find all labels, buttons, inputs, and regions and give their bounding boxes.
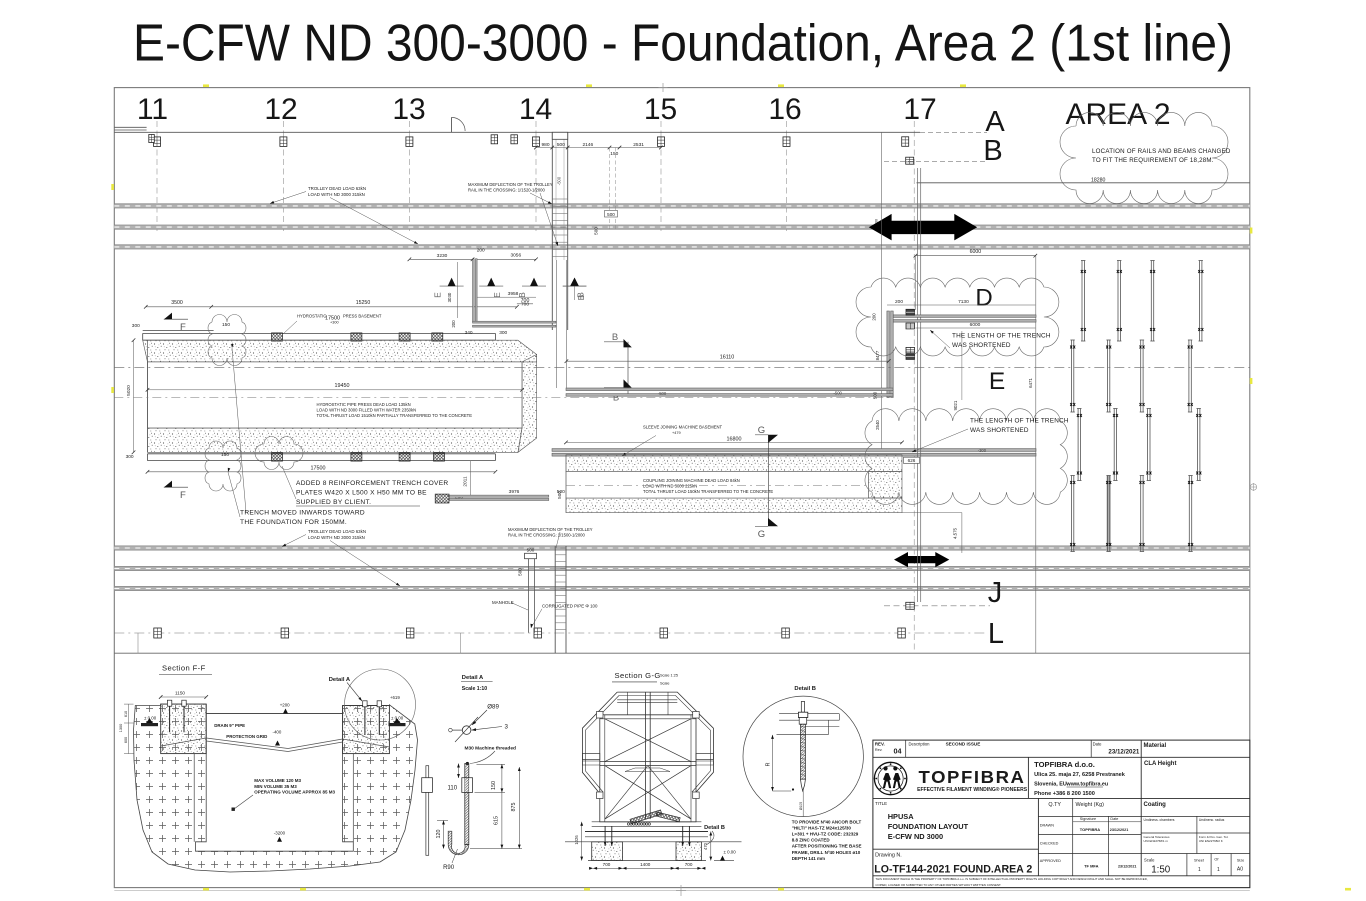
svg-text:M30 Machine threaded: M30 Machine threaded	[465, 746, 517, 752]
svg-text:EFFECTIVE FILAMENT WINDING® PI: EFFECTIVE FILAMENT WINDING® PIONEERS	[917, 786, 1027, 793]
svg-text:"HILTI" HAS-TZ M24x125/30: "HILTI" HAS-TZ M24x125/30	[792, 826, 852, 831]
svg-text:1: 1	[1198, 867, 1201, 873]
svg-text:Detail B: Detail B	[794, 686, 816, 692]
svg-text:J: J	[988, 577, 1003, 609]
svg-text:8.8 ZINC COATED: 8.8 ZINC COATED	[792, 838, 831, 843]
svg-text:23/12/2021: 23/12/2021	[1110, 828, 1128, 832]
svg-text:+200: +200	[280, 702, 290, 707]
svg-text:200: 200	[451, 320, 456, 328]
svg-text:300: 300	[499, 330, 507, 336]
svg-text:LOAD WITH ND 3000 315kN: LOAD WITH ND 3000 315kN	[308, 535, 365, 540]
svg-text:Date: Date	[1110, 817, 1118, 821]
svg-text:DEPTH 141 mm: DEPTH 141 mm	[792, 856, 825, 861]
svg-text:Ulica 25. maja 27, 6258 Prestr: Ulica 25. maja 27, 6258 Prestranek	[1034, 772, 1126, 778]
svg-text:980: 980	[541, 142, 549, 148]
svg-text:11: 11	[137, 93, 168, 126]
svg-text:HYDROSTATIC PIPE PRESS DEAD LO: HYDROSTATIC PIPE PRESS DEAD LOAD 135kN	[317, 402, 411, 407]
svg-text:875: 875	[511, 803, 517, 812]
svg-text:3: 3	[505, 724, 509, 731]
svg-text:MAX VOLUME 120 M3: MAX VOLUME 120 M3	[254, 778, 301, 783]
svg-text:150: 150	[221, 452, 229, 458]
svg-text:www.topfibra.eu: www.topfibra.eu	[1066, 782, 1109, 788]
svg-text:LOAD WITH ND 3000 FILLED WITH: LOAD WITH ND 3000 FILLED WITH WATER 2350…	[317, 408, 417, 413]
svg-text:B: B	[517, 292, 527, 298]
svg-text:16: 16	[768, 93, 801, 126]
svg-text:-500: -500	[557, 176, 562, 185]
svg-text:615: 615	[494, 816, 500, 825]
svg-text:2540: 2540	[875, 420, 880, 430]
svg-text:TOPFIBRA: TOPFIBRA	[919, 767, 1026, 787]
svg-text:PROTECTION GRID: PROTECTION GRID	[226, 734, 267, 739]
svg-text:1:50: 1:50	[1151, 865, 1171, 876]
svg-text:R: R	[766, 762, 772, 766]
svg-text:13: 13	[392, 93, 425, 126]
svg-text:15250: 15250	[356, 300, 371, 306]
svg-text:Section F-F: Section F-F	[162, 664, 206, 673]
svg-text:TROLLEY DEAD LOAD 63kN: TROLLEY DEAD LOAD 63kN	[308, 186, 366, 191]
svg-text:Undiness. chambers: Undiness. chambers	[1144, 818, 1175, 822]
svg-text:AREA 2: AREA 2	[1065, 98, 1170, 131]
svg-text:2531: 2531	[633, 142, 644, 148]
svg-text:Rev.: Rev.	[875, 748, 883, 752]
svg-text:TOPFIBRA: TOPFIBRA	[1080, 827, 1100, 832]
svg-text:6000: 6000	[970, 249, 982, 255]
svg-text:1400: 1400	[640, 862, 651, 867]
svg-text:REV.: REV.	[875, 741, 885, 746]
svg-text:LO-TF144-2021 FOUND.AREA 2: LO-TF144-2021 FOUND.AREA 2	[874, 863, 1032, 875]
svg-text:G: G	[758, 425, 765, 436]
svg-text:CORRUGATED PIPE Φ 100: CORRUGATED PIPE Φ 100	[542, 604, 598, 609]
svg-text:HYDROSTATIC: HYDROSTATIC	[297, 314, 326, 319]
svg-text:1: 1	[1217, 867, 1220, 873]
svg-text:Size: Size	[1237, 859, 1244, 863]
svg-text:COUPLING JOINING MACHINE DEAD: COUPLING JOINING MACHINE DEAD LOAD 84kN	[643, 478, 740, 483]
svg-text:17: 17	[903, 93, 936, 126]
svg-text:Detail A: Detail A	[462, 675, 484, 681]
svg-text:A0: A0	[1237, 866, 1243, 872]
svg-text:200: 200	[895, 299, 903, 305]
svg-text:6471: 6471	[1028, 378, 1033, 388]
svg-text:TOTAL THRUST LOAD 150kN TRANS: TOTAL THRUST LOAD 150kN TRANSFERRED TO T…	[643, 489, 773, 494]
svg-text:-400: -400	[273, 730, 282, 735]
svg-text:Drawing N.: Drawing N.	[875, 852, 902, 858]
svg-text:Coating: Coating	[1144, 802, 1167, 808]
svg-text:RAIL IN THE CROSSING: 1/1520-1: RAIL IN THE CROSSING: 1/1520-1/2000	[468, 188, 545, 193]
svg-text:2146: 2146	[582, 142, 593, 148]
svg-text:150: 150	[610, 151, 618, 157]
svg-text:6000: 6000	[970, 322, 981, 328]
svg-text:9021: 9021	[953, 400, 958, 410]
svg-text:Scale: Scale	[1144, 858, 1155, 863]
svg-text:Scale 1:10: Scale 1:10	[462, 686, 487, 692]
svg-text:Ø105: Ø105	[799, 802, 803, 810]
svg-text:3958: 3958	[508, 291, 519, 297]
svg-text:19450: 19450	[335, 383, 350, 389]
svg-text:TF MFA: TF MFA	[1084, 864, 1099, 869]
svg-text:OPERATING VOLUME APPROX 85 M3: OPERATING VOLUME APPROX 85 M3	[254, 790, 335, 795]
svg-text:F: F	[180, 322, 186, 333]
svg-text:Signature: Signature	[1080, 817, 1096, 821]
svg-text:Q.TY: Q.TY	[1048, 802, 1061, 808]
svg-text:14: 14	[519, 93, 552, 126]
svg-text:Undinenc. radius: Undinenc. radius	[1199, 818, 1225, 822]
svg-text:Detail B: Detail B	[704, 825, 725, 831]
svg-text:150: 150	[222, 322, 230, 328]
svg-text:Description: Description	[909, 741, 931, 746]
svg-text:DRAWN: DRAWN	[1040, 824, 1054, 828]
svg-text:16800: 16800	[727, 436, 742, 442]
svg-text:THE LENGTH OF THE TRENCH: THE LENGTH OF THE TRENCH	[970, 418, 1069, 425]
svg-text:PRESS BASEMENT: PRESS BASEMENT	[343, 314, 382, 319]
svg-text:TO PROVIDE Nº40 ANCOR BOLT: TO PROVIDE Nº40 ANCOR BOLT	[792, 820, 862, 825]
svg-text:RAIL IN THE CROSSING: 1/1500-1: RAIL IN THE CROSSING: 1/1500-1/2000	[508, 533, 585, 538]
svg-text:04: 04	[894, 747, 902, 756]
svg-text:MANHOLE: MANHOLE	[492, 600, 514, 605]
svg-text:L=301 + HVU-TZ CODE: 232329: L=301 + HVU-TZ CODE: 232329	[792, 832, 859, 837]
svg-text:Detail A: Detail A	[329, 677, 351, 683]
svg-text:500: 500	[607, 212, 615, 217]
svg-text:3056: 3056	[510, 252, 521, 258]
svg-text:Scale: Scale	[660, 682, 670, 686]
svg-text:2011: 2011	[463, 476, 469, 487]
svg-text:17500: 17500	[311, 466, 326, 472]
svg-text:Section G-G: Section G-G	[615, 671, 661, 680]
svg-text:-500: -500	[658, 391, 667, 396]
svg-text:D: D	[975, 285, 992, 312]
svg-text:SECOND ISSUE: SECOND ISSUE	[946, 742, 981, 747]
svg-text:B: B	[983, 135, 1002, 167]
svg-text:AFTER POSITIONING THE BASE: AFTER POSITIONING THE BASE	[792, 844, 862, 849]
svg-text:APPROVED: APPROVED	[1040, 859, 1061, 863]
svg-text:LOAD WITH ND 3000 225kN: LOAD WITH ND 3000 225kN	[643, 484, 697, 489]
svg-text:300: 300	[132, 323, 140, 329]
svg-text:MAXIMUM DEFLECTION OF THE TROL: MAXIMUM DEFLECTION OF THE TROLLEY	[468, 182, 553, 187]
svg-text:-3200: -3200	[274, 831, 286, 836]
svg-text:500: 500	[557, 142, 565, 148]
svg-text:600: 600	[124, 737, 128, 743]
svg-text:ADDED 8 REINFORCEMENT TRENCH C: ADDED 8 REINFORCEMENT TRENCH COVER	[296, 480, 448, 487]
svg-text:1026: 1026	[574, 835, 579, 845]
svg-text:E-CFW ND 3000: E-CFW ND 3000	[888, 832, 943, 841]
svg-text:200: 200	[872, 313, 877, 321]
svg-text:B: B	[576, 294, 586, 300]
svg-text:TOPFIBRA d.o.o.: TOPFIBRA d.o.o.	[1034, 760, 1095, 769]
svg-text:-300: -300	[978, 448, 987, 453]
svg-text:Scale 1:25: Scale 1:25	[660, 674, 678, 678]
svg-text:COPIED, LOANED OR SUBMITTED TO: COPIED, LOANED OR SUBMITTED TO ANY OTHER…	[875, 883, 1001, 887]
svg-text:TO FIT THE REQUIREMENT OF 18,2: TO FIT THE REQUIREMENT OF 18,28M.	[1092, 157, 1214, 164]
svg-text:23/12/2021: 23/12/2021	[1108, 749, 1140, 756]
svg-text:LOCATION OF RAILS AND BEAMS CH: LOCATION OF RAILS AND BEAMS CHANGED	[1092, 148, 1231, 155]
svg-text:700: 700	[521, 302, 529, 308]
svg-text:500: 500	[557, 491, 562, 499]
svg-text:THIS DOCUMENT WHICH IS THE PRO: THIS DOCUMENT WHICH IS THE PROPERTY OF T…	[875, 877, 1147, 881]
svg-text:+619: +619	[390, 695, 400, 700]
svg-text:FRAME, DRILL Nº40 HOLES ø10: FRAME, DRILL Nº40 HOLES ø10	[792, 850, 861, 855]
svg-text:610: 610	[124, 711, 128, 717]
svg-text:PLATES W420 X L500 X H50 MM TO: PLATES W420 X L500 X H50 MM TO BE	[296, 490, 427, 497]
svg-text:3030: 3030	[447, 292, 452, 302]
svg-text:700: 700	[685, 862, 693, 867]
svg-text:340: 340	[465, 330, 473, 336]
svg-text:Ø89: Ø89	[487, 704, 499, 711]
svg-text:CLA Height: CLA Height	[1144, 761, 1176, 767]
svg-text:E: E	[989, 368, 1005, 395]
svg-text:470: 470	[703, 842, 708, 850]
svg-text:THE LENGTH OF THE TRENCH: THE LENGTH OF THE TRENCH	[952, 333, 1051, 340]
svg-text:TROLLEY DEAD LOAD 63kN: TROLLEY DEAD LOAD 63kN	[308, 529, 366, 534]
svg-text:F: F	[180, 490, 186, 501]
svg-text:626: 626	[908, 458, 916, 463]
svg-text:Sheet: Sheet	[1194, 859, 1205, 863]
svg-text:TOTAL THRUST LOAD 1510kN PAR: TOTAL THRUST LOAD 1510kN PARTIALLY TRANS…	[317, 413, 473, 418]
svg-text:UNI EN22768/1 m: UNI EN22768/1 m	[1144, 839, 1169, 843]
svg-text:WAS SHORTENED: WAS SHORTENED	[970, 427, 1029, 434]
svg-text:CHECKED: CHECKED	[1040, 842, 1059, 846]
svg-text:± 0.00: ± 0.00	[724, 850, 737, 855]
svg-text:R90: R90	[443, 865, 455, 871]
svg-text:150: 150	[491, 781, 497, 790]
svg-text:B: B	[612, 332, 618, 343]
svg-text:3500: 3500	[171, 300, 183, 306]
svg-text:A: A	[985, 106, 1005, 138]
svg-text:MIN VOLUME 35 M3: MIN VOLUME 35 M3	[254, 784, 297, 789]
svg-text:G: G	[758, 529, 765, 540]
svg-text:7130: 7130	[958, 299, 969, 305]
svg-text:Material: Material	[1144, 743, 1167, 749]
svg-text:300: 300	[126, 454, 134, 460]
svg-text:4.575: 4.575	[953, 527, 958, 539]
svg-text:SLEEVE JOINING MACHINE BASEMEN: SLEEVE JOINING MACHINE BASEMENT	[643, 425, 723, 430]
svg-text:FOUNDATION LAYOUT: FOUNDATION LAYOUT	[888, 822, 969, 831]
svg-text:E-CFW ND 300-3000 - Foundation: E-CFW ND 300-3000 - Foundation, Area 2 (…	[133, 15, 1233, 73]
svg-text:HPUSA: HPUSA	[888, 812, 915, 821]
svg-text:WAS SHORTENED: WAS SHORTENED	[952, 342, 1011, 349]
svg-text:700: 700	[603, 862, 611, 867]
svg-text:8477: 8477	[875, 350, 880, 360]
svg-text:TRENCH MOVED INWARDS TOWARD: TRENCH MOVED INWARDS TOWARD	[240, 510, 365, 517]
svg-text:200: 200	[477, 247, 485, 253]
svg-text:Date: Date	[1093, 741, 1103, 746]
svg-text:500: 500	[594, 227, 599, 235]
svg-text:1300: 1300	[119, 724, 123, 732]
svg-text:500: 500	[518, 568, 523, 576]
svg-text:MAXIMUM DEFLECTION OF THE TROL: MAXIMUM DEFLECTION OF THE TROLLEY	[508, 527, 593, 532]
svg-text:E: E	[492, 292, 502, 298]
svg-text:UNI EN22768/2 K: UNI EN22768/2 K	[1199, 839, 1223, 843]
svg-text:120: 120	[436, 830, 442, 839]
svg-text:110: 110	[448, 786, 458, 792]
svg-text:-500: -500	[834, 390, 843, 395]
svg-text:1150: 1150	[175, 691, 185, 696]
svg-text:THE FOUNDATION FOR 150MM.: THE FOUNDATION FOR 150MM.	[240, 519, 347, 526]
svg-text:LOAD WITH ND 3000 315kN: LOAD WITH ND 3000 315kN	[308, 192, 365, 197]
svg-text:+479: +479	[672, 431, 681, 435]
svg-text:500: 500	[873, 391, 878, 399]
svg-text:+300: +300	[330, 321, 339, 325]
svg-text:SUPPLIED BY CLIENT.: SUPPLIED BY CLIENT.	[296, 499, 371, 506]
svg-text:3976: 3976	[509, 489, 520, 495]
svg-text:TITLE: TITLE	[875, 801, 887, 806]
svg-text:Weight (Kg): Weight (Kg)	[1076, 802, 1105, 808]
svg-text:12: 12	[264, 93, 297, 126]
svg-text:E: E	[433, 292, 443, 298]
svg-text:Slovenia, EU: Slovenia, EU	[1034, 782, 1067, 788]
svg-text:L: L	[988, 618, 1004, 650]
svg-text:DRAIN 9" PIPE: DRAIN 9" PIPE	[214, 723, 245, 728]
svg-text:23/12/2021: 23/12/2021	[1118, 865, 1136, 869]
svg-text:Phone +386 8 200 1500: Phone +386 8 200 1500	[1034, 791, 1095, 797]
svg-text:15: 15	[644, 93, 677, 126]
svg-text:500: 500	[527, 548, 535, 553]
svg-text:5020: 5020	[126, 385, 132, 396]
svg-text:3230: 3230	[437, 253, 448, 259]
svg-text:16110: 16110	[720, 354, 735, 360]
